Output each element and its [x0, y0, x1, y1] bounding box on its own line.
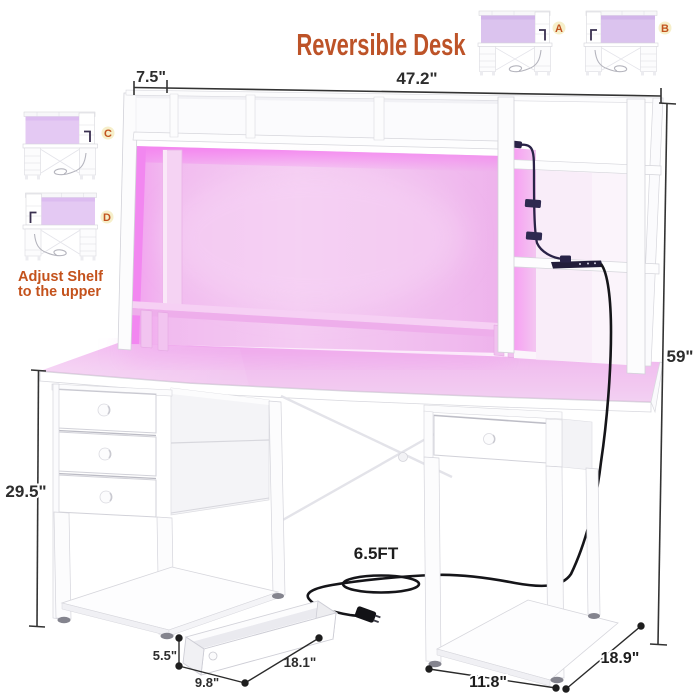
svg-text:59": 59" [667, 347, 694, 366]
svg-text:B: B [661, 23, 669, 35]
svg-text:47.2": 47.2" [396, 69, 437, 88]
svg-text:29.5": 29.5" [5, 482, 46, 501]
svg-text:18.9": 18.9" [601, 650, 640, 667]
svg-text:6.5FT: 6.5FT [354, 544, 399, 563]
svg-text:D: D [103, 212, 111, 224]
svg-text:to the upper: to the upper [18, 283, 101, 300]
svg-text:Reversible Desk: Reversible Desk [297, 27, 467, 62]
svg-text:A: A [555, 23, 563, 35]
svg-text:11.8": 11.8" [469, 674, 507, 691]
svg-text:5.5": 5.5" [153, 648, 177, 663]
svg-text:9.8": 9.8" [195, 675, 219, 690]
svg-text:C: C [104, 128, 112, 140]
svg-text:18.1": 18.1" [284, 655, 317, 670]
svg-text:7.5": 7.5" [136, 69, 166, 86]
